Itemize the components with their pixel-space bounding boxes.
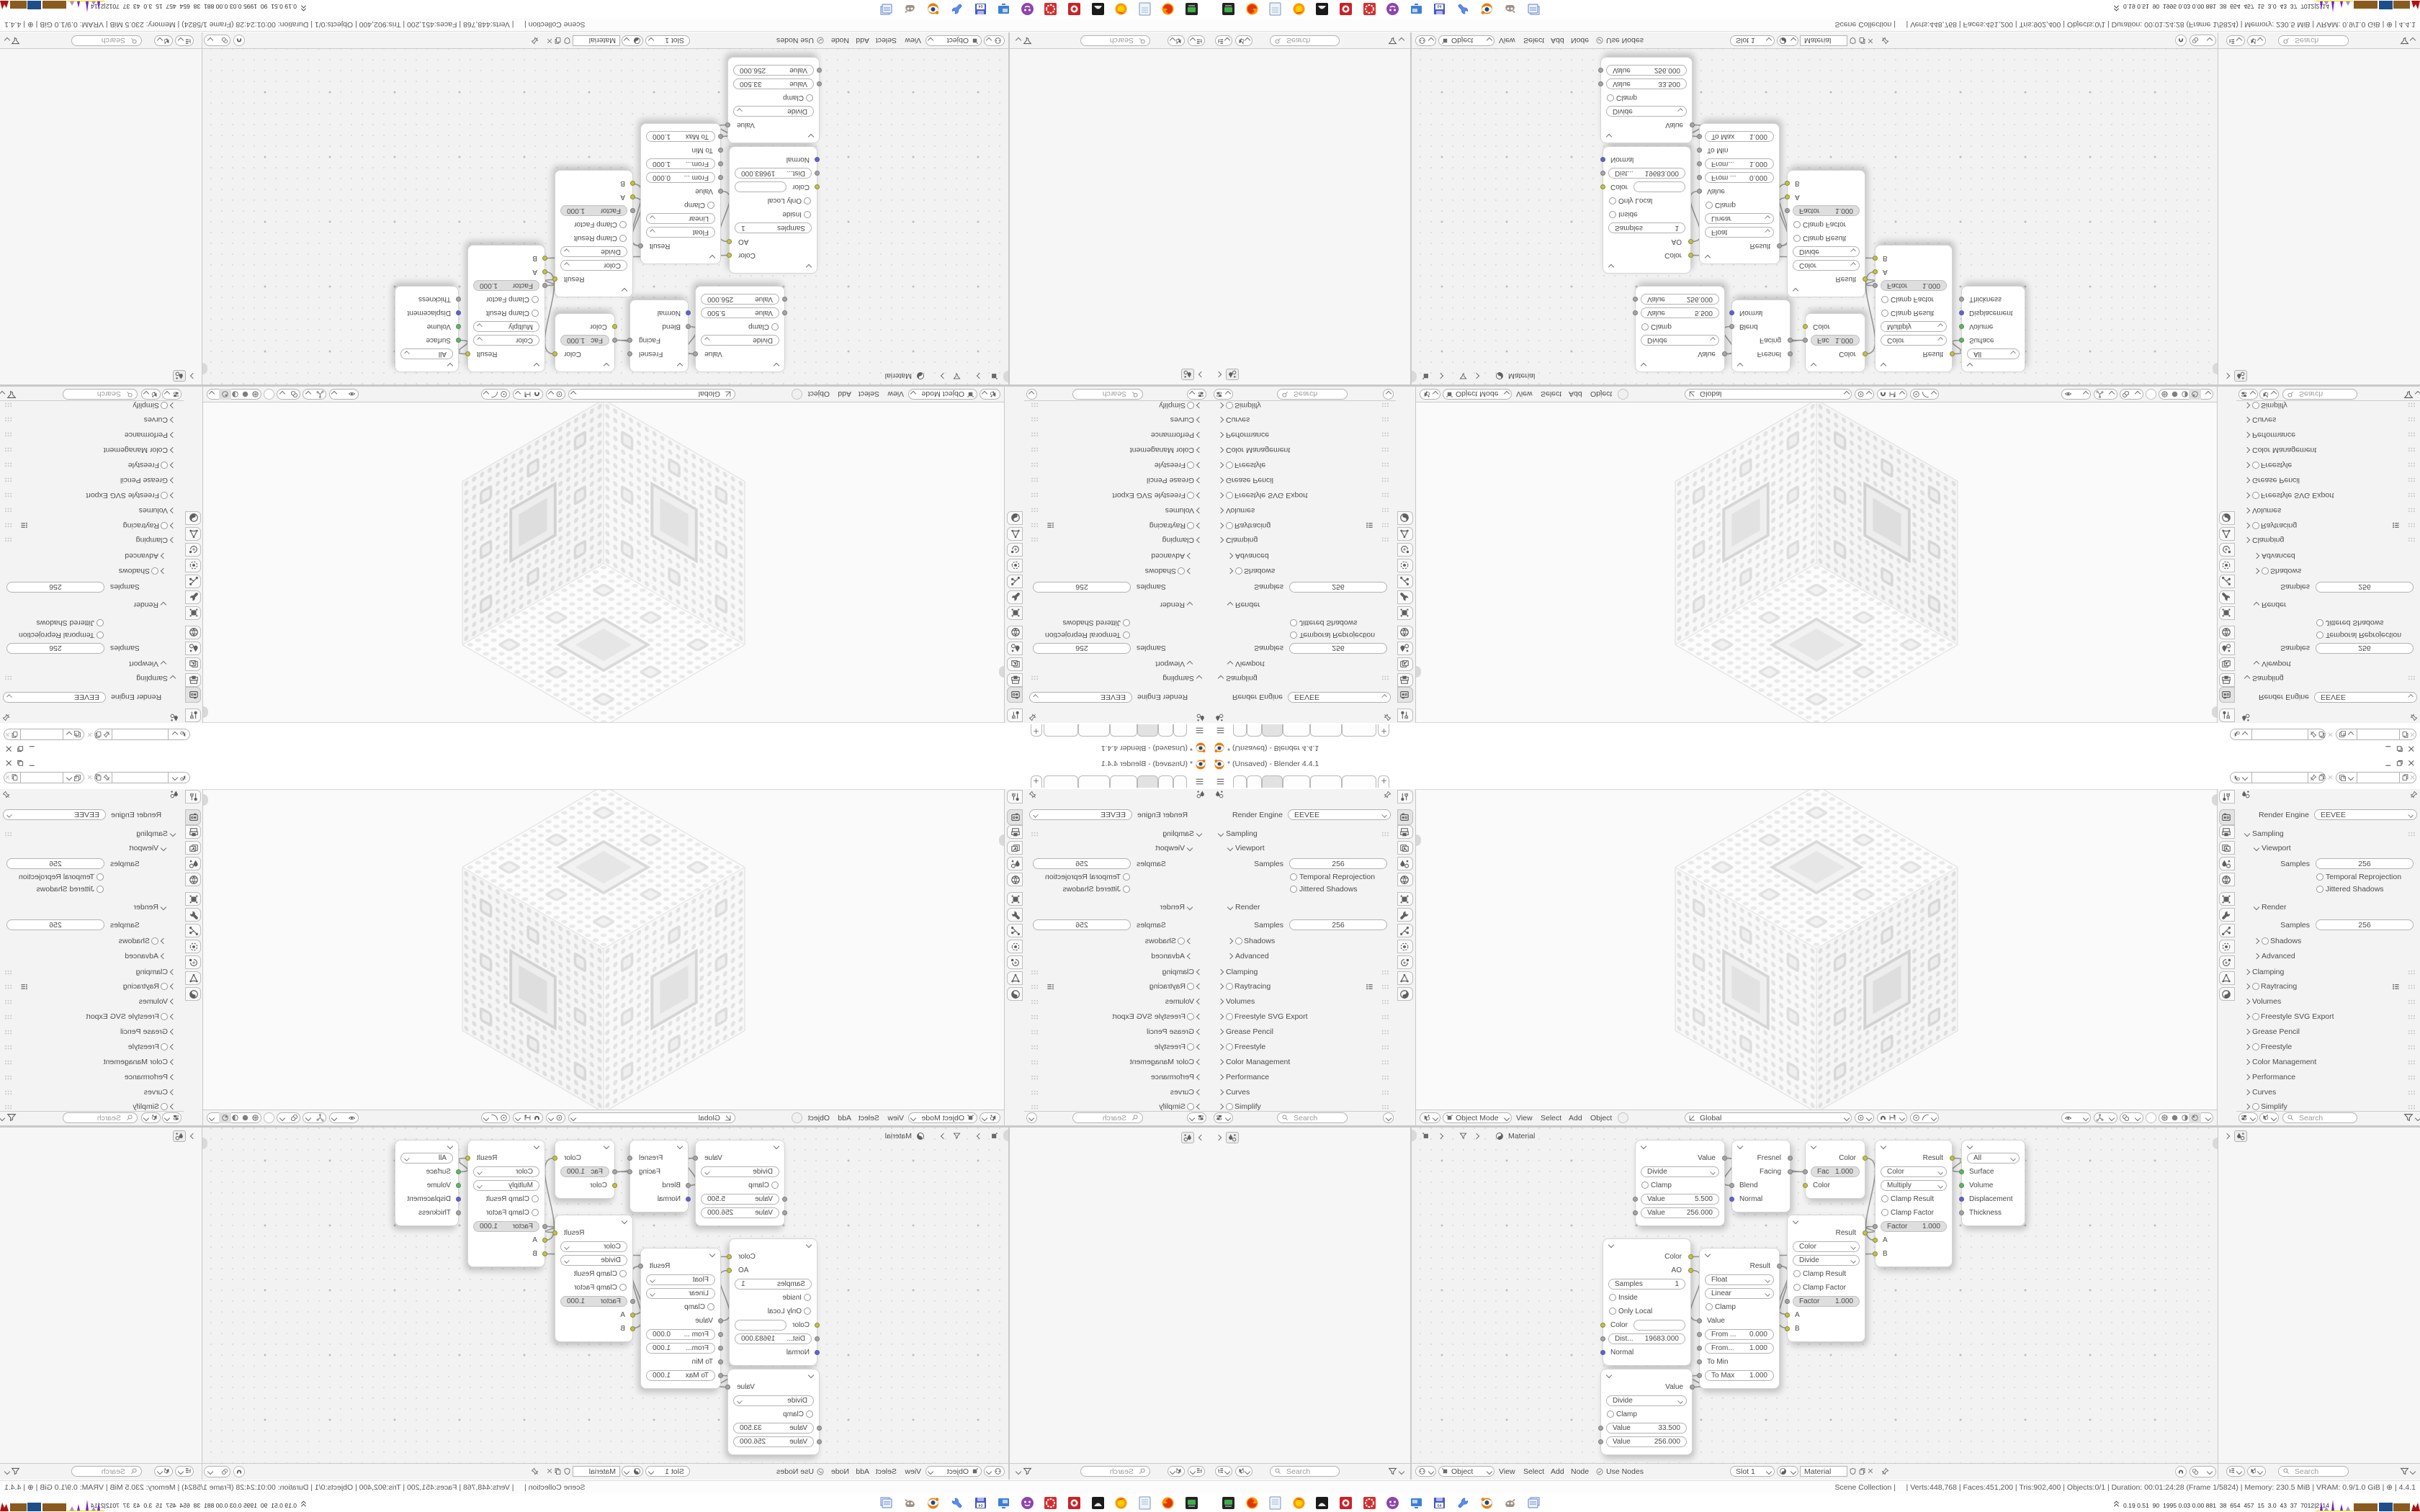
svg-text:64: 64 — [978, 4, 982, 8]
svg-text:64: 64 — [1437, 1504, 1441, 1508]
svg-text:64: 64 — [1437, 4, 1441, 8]
svg-text:64: 64 — [978, 1504, 982, 1508]
